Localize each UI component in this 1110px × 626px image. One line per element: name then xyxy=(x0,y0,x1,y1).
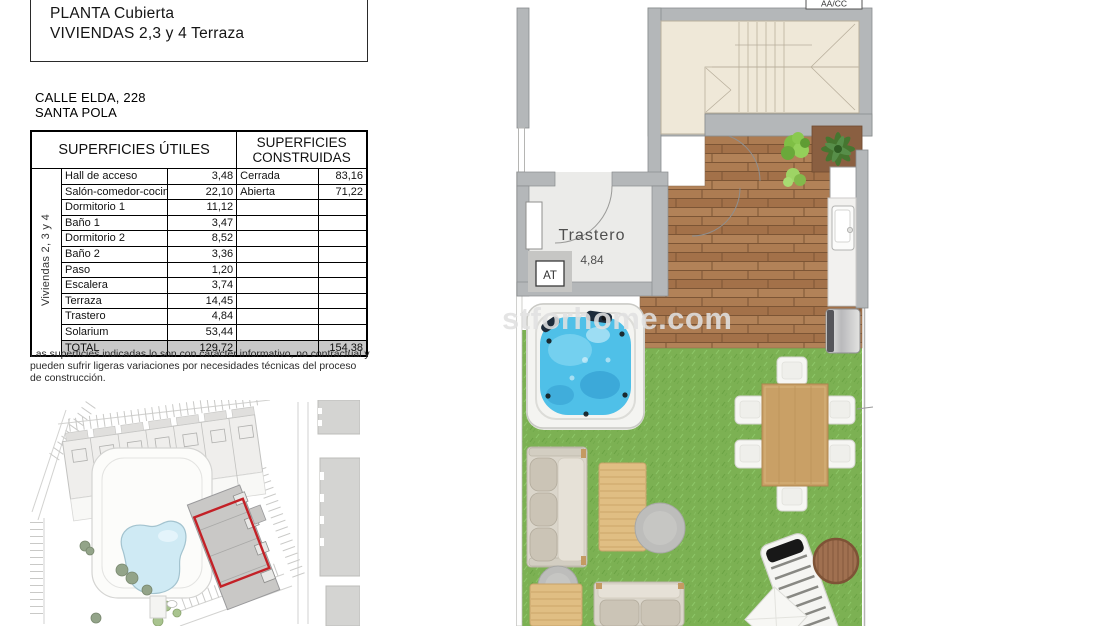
bbq-grill xyxy=(826,309,860,353)
outdoor-sink-counter xyxy=(828,198,856,306)
palm-plant xyxy=(821,132,855,166)
at-label: AT xyxy=(543,270,557,282)
low-table xyxy=(530,584,582,626)
floor-plan: AA/CC xyxy=(0,0,1110,626)
watermark: stforhome.com xyxy=(502,301,732,336)
trastero-area: 4,84 xyxy=(580,253,604,267)
trastero-window xyxy=(526,202,542,249)
aacc-unit: AA/CC xyxy=(806,0,862,9)
aacc-label: AA/CC xyxy=(821,0,847,9)
wooden-round-deck xyxy=(814,538,858,584)
dining-table xyxy=(762,384,828,486)
page: PLANTA Cubierta VIVIENDAS 2,3 y 4 Terraz… xyxy=(0,0,1110,626)
trastero-label: Trastero xyxy=(559,227,626,244)
trastero-room: AT Trastero 4,84 xyxy=(517,172,668,296)
garden-sofa xyxy=(527,447,587,567)
at-box: AT xyxy=(528,251,572,292)
garden-loveseat xyxy=(594,582,684,626)
